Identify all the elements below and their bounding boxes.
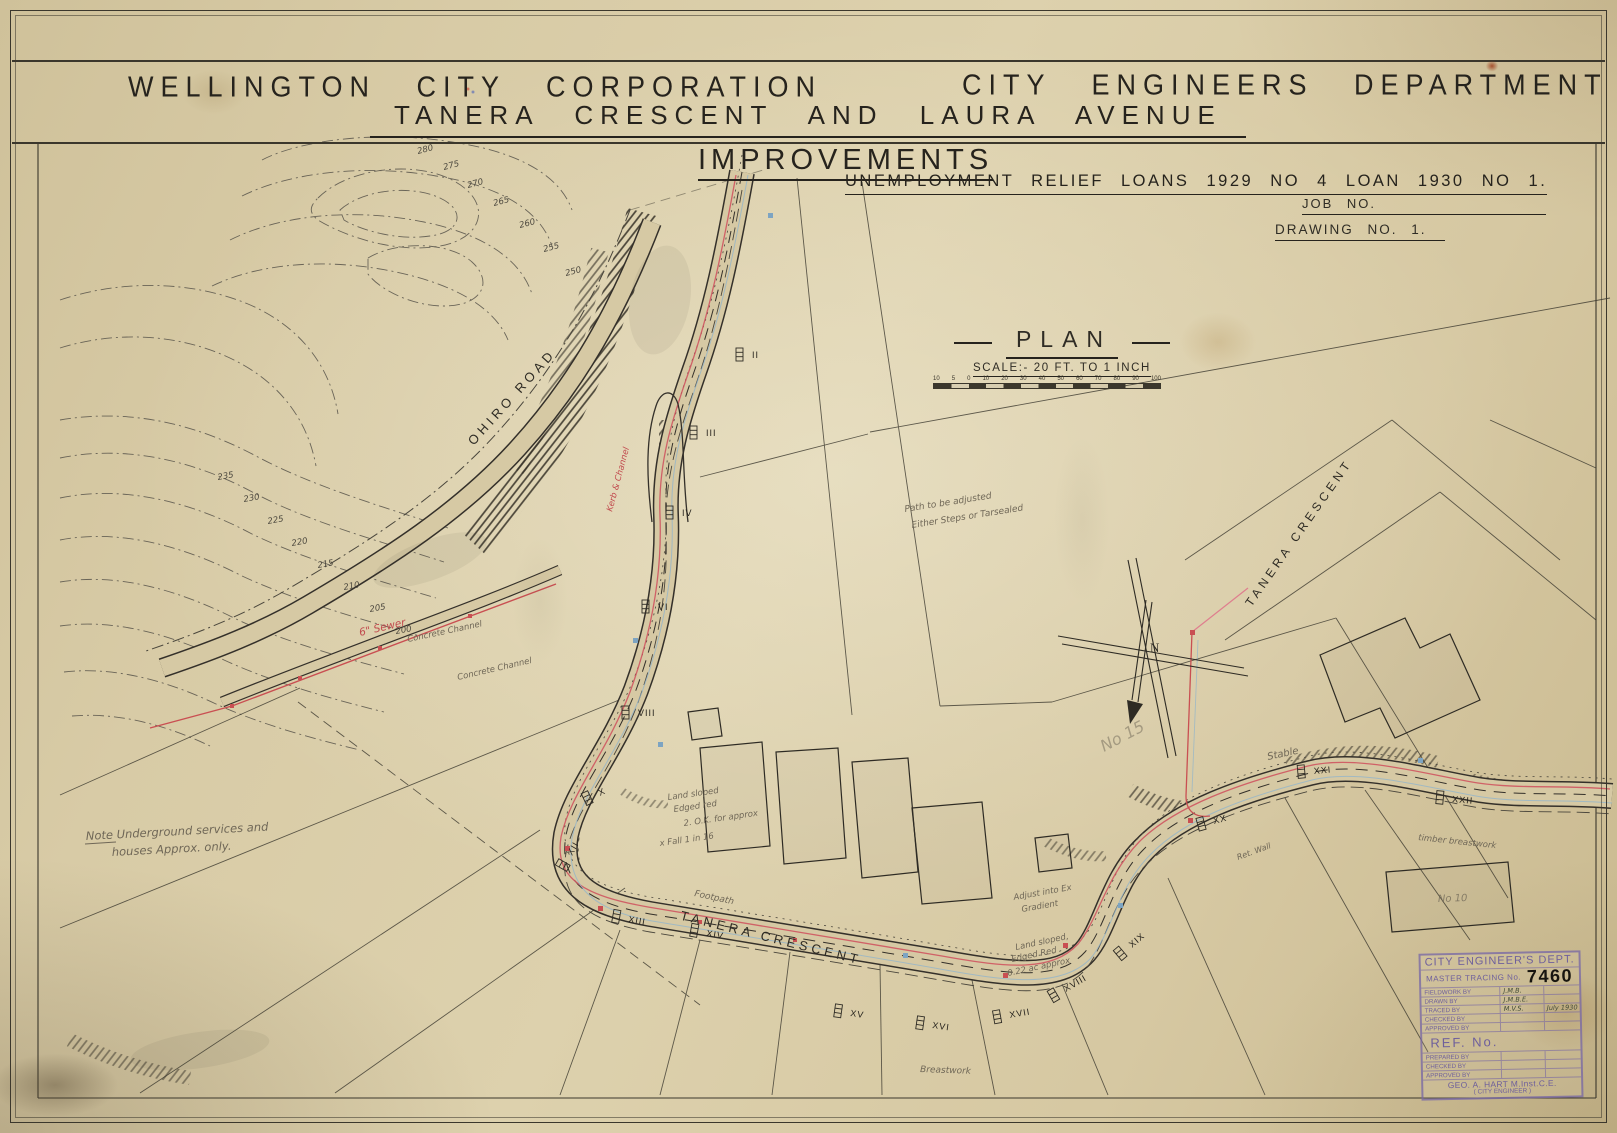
house-outline (776, 748, 846, 864)
scale-ticks: 10 5 0 10 20 30 40 50 60 70 80 90 100 (933, 376, 1161, 382)
footpath-label: Footpath (693, 889, 735, 907)
master-tracing-number: 7460 (1527, 965, 1573, 987)
scale-tick-label: 0 (967, 376, 970, 382)
boundary-line (1336, 618, 1508, 898)
scale-tick-label: 30 (1020, 376, 1027, 382)
pencil-smudges (128, 241, 699, 1078)
contour-line (60, 579, 404, 674)
org-title: WELLINGTON CITY CORPORATION (128, 71, 822, 104)
contour-line (60, 624, 384, 712)
station-label: VI (658, 602, 669, 612)
master-tracing-label: MASTER TRACING No. (1426, 973, 1521, 984)
boundary-line (1168, 878, 1265, 1095)
contour-line (60, 337, 316, 466)
blue-node-markers (633, 213, 1423, 958)
boundary-line (700, 434, 868, 477)
station-marker (690, 426, 697, 439)
boundary-line (797, 178, 852, 715)
scale-tick-label: 100 (1151, 376, 1161, 382)
boundary-line (1052, 618, 1336, 702)
contour-label: 270 (466, 177, 484, 191)
note-land1-line1: Land sloped (667, 786, 720, 803)
station-marker (834, 1004, 843, 1018)
scale-tick-label: 70 (1095, 376, 1102, 382)
drawing-no-label: DRAWING NO. 1. (1275, 222, 1445, 241)
contour-label: 255 (542, 241, 560, 255)
timber-breastwork-label: timber breastwork (1418, 833, 1498, 851)
station-marker (555, 859, 570, 872)
station-label: XII (565, 840, 581, 857)
station-marker (1436, 791, 1444, 805)
row-label: DRAWN BY (1421, 996, 1500, 1006)
station-marker (642, 600, 649, 613)
contour-line (368, 246, 483, 306)
contour-label: 235 (217, 470, 235, 483)
contour-line (212, 264, 508, 340)
scale-tick-label: 60 (1076, 376, 1083, 382)
north-letter: N (1150, 640, 1160, 655)
scale-tick-label: 40 (1039, 376, 1046, 382)
slope-hachures (70, 212, 1596, 1078)
row-extra (1546, 1068, 1581, 1077)
row-value (1502, 1069, 1546, 1078)
row-extra (1545, 1021, 1580, 1030)
contour-line (311, 169, 478, 248)
row-extra: July 1930 (1545, 1003, 1580, 1012)
scale-caption-wrap: SCALE:- 20 FT. TO 1 INCH (952, 358, 1172, 376)
station-label: XXII (1452, 794, 1474, 806)
water-main-blue-line (571, 175, 1612, 980)
boundary-line (772, 952, 790, 1095)
hachure-band (1286, 752, 1438, 764)
contour-label: 265 (492, 195, 510, 209)
red-node-markers (230, 614, 1195, 978)
contour-line (64, 671, 360, 750)
contour-lines (60, 137, 572, 750)
branch-road (150, 570, 560, 728)
boundary-line (60, 698, 624, 928)
boundary-lines (60, 168, 1610, 1095)
scale-tick-label: 90 (1132, 376, 1139, 382)
boundary-line (1365, 790, 1470, 940)
breastwork-label: Breastwork (920, 1065, 972, 1077)
station-label: XX (1212, 813, 1228, 826)
contour-label: 225 (267, 514, 285, 527)
contour-line (340, 190, 457, 237)
row-label: TRACED BY (1422, 1005, 1501, 1015)
scale-tick-label: 50 (1057, 376, 1064, 382)
station-label: VIII (638, 708, 656, 718)
row-value (1501, 1013, 1545, 1022)
hachure-band (612, 560, 664, 748)
contour-label: 200 (395, 624, 413, 637)
boundary-line (862, 182, 940, 706)
boundary-line (972, 980, 995, 1095)
tanera-crescent-road (560, 155, 1612, 991)
station-marker (1196, 817, 1206, 831)
contour-label: 230 (243, 492, 261, 505)
stamp-footer: GEO. A. HART M.Inst.C.E. ( CITY ENGINEER… (1423, 1077, 1581, 1098)
north-cross-marker: N (1058, 558, 1248, 758)
boundary-line (660, 940, 700, 1095)
row-label: CHECKED BY (1423, 1061, 1502, 1071)
road-parallel-dotted (565, 155, 1612, 956)
row-label: APPROVED BY (1423, 1070, 1502, 1080)
house-outline (688, 708, 722, 740)
note-land1-line2: Edged red (673, 799, 718, 815)
contour-line (60, 453, 444, 562)
contour-label: 205 (369, 602, 387, 615)
lot-number-15: No 15 (1097, 717, 1148, 756)
row-extra (1546, 1050, 1581, 1059)
hachure-band (571, 796, 586, 892)
boundary-line (880, 964, 882, 1095)
row-extra (1545, 994, 1580, 1003)
hachure-band (1046, 842, 1106, 856)
hachure-band (474, 212, 642, 544)
note-path-line2: Either Steps or Tarsealed (911, 503, 1024, 531)
contour-labels: 280 275 270 265 260 255 250 235 230 225 … (217, 143, 583, 637)
boundary-line (940, 702, 1052, 706)
sewer-line (150, 584, 556, 728)
street-subtitle: TANERA CRESCENT AND LAURA AVENUE (370, 100, 1246, 138)
boundary-line (1062, 984, 1108, 1095)
row-label: CHECKED BY (1422, 1014, 1501, 1024)
contour-line (60, 416, 448, 528)
boundary-line (298, 702, 700, 1005)
plan-dash-left (954, 342, 992, 344)
stamp-master-row: MASTER TRACING No. 7460 (1421, 967, 1579, 988)
contour-label: 220 (291, 536, 309, 549)
station-marker (690, 923, 699, 937)
row-extra (1546, 1059, 1581, 1068)
station-label: XIII (628, 914, 647, 927)
plan-dash-right (1132, 342, 1170, 344)
station-label: II (752, 350, 759, 360)
station-label: III (706, 428, 717, 438)
north-arrowhead (1127, 700, 1143, 724)
road-labels: OHIRO ROAD TANERA CRESCENT TANERA CRESCE… (465, 346, 1355, 1077)
house-outline (912, 802, 992, 904)
drawing-sheet: N II III IV VI VIII X XII XIII XIV (0, 0, 1617, 1133)
note-gradient-line2: Gradient (1021, 899, 1060, 915)
stations: II III IV VI VIII X XII XIII XIV XV XVI … (555, 348, 1473, 1033)
header-rule-top (12, 60, 1605, 62)
houses (688, 618, 1514, 932)
scale-tick-label: 10 (933, 376, 940, 382)
right-red-service-line (1186, 588, 1248, 816)
contour-line (230, 215, 532, 294)
proposed-works-red-line (560, 175, 1610, 965)
contour-line (242, 170, 552, 246)
note-land2-line3: 0.22 ac approx (1007, 956, 1073, 979)
hachure-band (648, 908, 812, 938)
note-land1-line4: x Fall 1 in 16 (658, 831, 715, 849)
title-block-stamp: CITY ENGINEER'S DEPT. MASTER TRACING No.… (1418, 950, 1583, 1100)
hachure-band (516, 250, 600, 470)
boundary-line (1285, 798, 1428, 1052)
contour-label: 275 (442, 159, 460, 173)
station-marker (622, 706, 629, 719)
scale-bar: 10 5 0 10 20 30 40 50 60 70 80 90 100 (933, 376, 1161, 389)
contour-line (60, 536, 420, 636)
hachure-band (620, 790, 668, 804)
boundary-line (335, 888, 625, 1093)
scale-tick-label: 10 (982, 376, 989, 382)
plan-title: PLAN (1006, 326, 1118, 359)
ohiro-road (143, 210, 652, 668)
note-underground-line2: houses Approx. only. (111, 839, 231, 859)
station-marker (612, 909, 621, 923)
contour-line (60, 493, 436, 598)
house-outline (852, 758, 918, 878)
station-label: XIX (1127, 931, 1147, 950)
station-label: XVIII (1062, 973, 1088, 994)
house-outline (700, 742, 770, 852)
contour-label: 215 (317, 558, 335, 571)
row-value (1501, 1022, 1545, 1031)
city-engineer-title: ( CITY ENGINEER ) (1474, 1088, 1532, 1096)
note-underground-line1: Note Underground services and (85, 819, 269, 843)
note-land1-line3: 2. O.K. for approx (683, 809, 760, 829)
house-outline (1386, 862, 1514, 932)
contour-label: 260 (518, 217, 536, 231)
hachure-band (1130, 790, 1214, 808)
scale-bar-strip (933, 383, 1161, 389)
contour-label: 210 (343, 580, 361, 593)
contour-label: 280 (416, 143, 434, 157)
stable-label: Stable (1266, 746, 1299, 763)
plan-title-block: PLAN (952, 326, 1172, 359)
boundary-line (1185, 420, 1392, 560)
dept-title: CITY ENGINEERS DEPARTMENT (962, 69, 1608, 102)
note-underline (85, 842, 116, 844)
station-marker (581, 791, 593, 806)
tanera-crescent-bottom-label: TANERA CRESCENT (679, 908, 863, 968)
hachure-band (70, 1040, 190, 1078)
note-concrete-channel-a: Concrete Channel (407, 619, 484, 645)
scale-tick-label: 20 (1001, 376, 1008, 382)
hachure-band (1470, 778, 1596, 790)
note-concrete-channel-b: Concrete Channel (456, 656, 533, 683)
tanera-crescent-right-label: TANERA CRESCENT (1242, 456, 1355, 609)
row-value (1502, 1051, 1546, 1060)
kerb-channel-label: Kerb & Channel (605, 446, 632, 513)
note-land2-line1: Land sloped, (1015, 932, 1070, 953)
scale-caption: SCALE:- 20 FT. TO 1 INCH (973, 362, 1151, 377)
note-path-line1: Path to be adjusted (904, 491, 993, 515)
station-marker (1297, 765, 1305, 779)
contour-line (72, 715, 210, 746)
row-value (1502, 1060, 1546, 1069)
road-parallel-dashed (565, 190, 1612, 991)
row-value: M.V.S. (1501, 1004, 1545, 1013)
boundary-line (1440, 492, 1596, 620)
station-marker (1113, 946, 1127, 960)
station-marker (736, 348, 743, 361)
note-gradient-line1: Adjust into Ex (1012, 883, 1074, 903)
boundary-line (140, 830, 540, 1093)
row-label: PREPARED BY (1423, 1052, 1502, 1062)
loans-subtitle: UNEMPLOYMENT RELIEF LOANS 1929 NO 4 LOAN… (845, 172, 1547, 195)
contour-line (262, 137, 572, 210)
ohiro-road-boundary (143, 210, 630, 652)
sewer-label: 6" Sewer (358, 616, 407, 638)
note-land2-line2: Edged Red (1011, 945, 1059, 964)
station-label: IV (682, 508, 693, 518)
station-label: XV (850, 1008, 865, 1020)
road-centerline (565, 172, 1612, 973)
station-marker (1047, 988, 1060, 1003)
scale-tick-label: 5 (952, 376, 955, 382)
station-label: X (597, 786, 608, 798)
row-label: APPROVED BY (1422, 1023, 1501, 1033)
station-marker (916, 1016, 925, 1030)
ohiro-road-label: OHIRO ROAD (465, 346, 559, 448)
station-marker (993, 1010, 1002, 1024)
station-label: XVII (1009, 1006, 1031, 1019)
row-extra (1545, 1012, 1580, 1021)
house-number-10: No 10 (1438, 893, 1468, 905)
house-outline (1035, 834, 1072, 872)
map-frame (38, 143, 1596, 1098)
scale-tick-label: 80 (1114, 376, 1121, 382)
station-label: XVI (932, 1020, 951, 1032)
ret-wall-label: Ret. Wall (1236, 841, 1273, 862)
row-label: FIELDWORK BY (1421, 987, 1500, 997)
boundary-line (1392, 420, 1560, 560)
contour-label: 250 (564, 265, 582, 279)
spur-road (648, 393, 688, 522)
boundary-line (560, 930, 620, 1095)
job-no-label: JOB NO. (1302, 196, 1546, 215)
station-label: XIV (706, 928, 725, 941)
row-value: J.M.B.E. (1500, 995, 1544, 1004)
contour-line (60, 285, 338, 414)
station-label: XXI (1313, 765, 1331, 776)
boundary-line (1225, 492, 1440, 640)
boundary-line (1490, 420, 1596, 468)
pencil-notes: Note Underground services and houses App… (85, 446, 1498, 979)
station-marker (666, 506, 673, 519)
house-outline (1320, 618, 1480, 738)
boundary-line (60, 688, 300, 795)
row-value: J.M.B. (1500, 986, 1544, 995)
